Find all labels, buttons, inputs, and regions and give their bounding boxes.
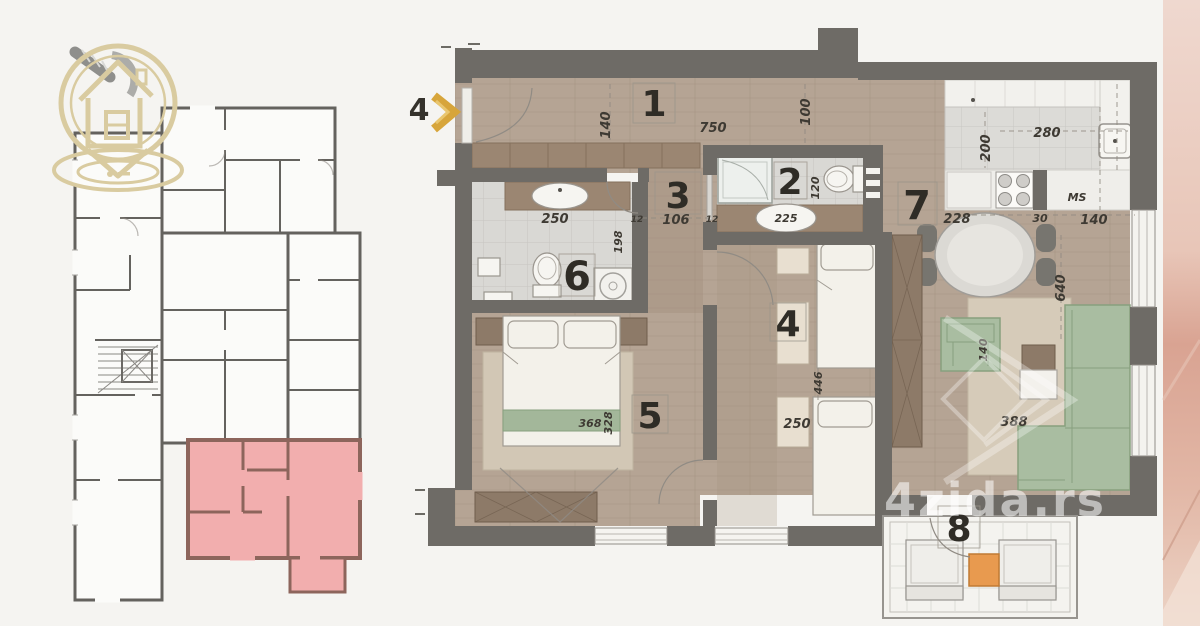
dim-dishwasher: MS xyxy=(1068,191,1087,204)
sliding-door xyxy=(707,170,712,220)
dim-kitchen-b: 30 xyxy=(1032,212,1048,225)
entrance-number: 4 xyxy=(409,93,430,128)
single-bed xyxy=(813,397,877,515)
main-floor-plan: 4 1 2 3 4 5 6 7 8 750 140 100 xyxy=(409,28,1157,618)
dim-bed4-height: 446 xyxy=(812,371,825,395)
floorplan-page: 4 1 2 3 4 5 6 7 8 750 140 100 xyxy=(0,0,1200,626)
room-label-4: 4 xyxy=(775,304,800,345)
stove xyxy=(996,172,1033,208)
terrace-chair xyxy=(999,540,1056,600)
dim-hall-width: 140 xyxy=(599,111,614,138)
bidet xyxy=(478,258,500,276)
room-label-6: 6 xyxy=(563,254,591,300)
room-label-3: 3 xyxy=(665,176,690,217)
dim-living-height: 640 xyxy=(1054,274,1069,301)
toilet xyxy=(824,166,864,192)
nightstand xyxy=(777,248,809,274)
dim-bath2-width: 120 xyxy=(809,176,822,199)
dim-bath2-sink: 225 xyxy=(775,212,798,225)
dim-kitchen-width: 280 xyxy=(1033,126,1060,141)
hallway-wardrobe xyxy=(472,143,700,168)
background-photo-strip xyxy=(1163,0,1200,626)
site-watermark: 4zida.rs xyxy=(884,473,1106,527)
dim-kitchen-a: 228 xyxy=(943,212,970,227)
washing-machine xyxy=(594,268,632,304)
sink xyxy=(532,183,588,209)
dim-hall3-wall-left: 12 xyxy=(631,215,644,225)
terrace-table xyxy=(969,554,999,586)
dim-hall-length: 750 xyxy=(699,121,726,136)
dim-hall3-wall-right: 12 xyxy=(706,215,719,225)
floorplan-canvas: 4 1 2 3 4 5 6 7 8 750 140 100 xyxy=(0,0,1200,626)
dim-hall3-width: 106 xyxy=(662,213,689,228)
bedroom-5-wardrobe xyxy=(475,492,597,522)
room-label-2: 2 xyxy=(777,162,802,203)
living-wardrobe xyxy=(892,235,922,447)
wall-shelf-slots xyxy=(866,168,880,198)
single-bed xyxy=(817,240,877,368)
dim-bed4-width: 250 xyxy=(783,417,810,432)
dim-bath6-width: 250 xyxy=(541,212,568,227)
dim-bed5-width: 368 xyxy=(579,417,602,430)
dim-duct: 100 xyxy=(799,98,814,125)
dim-kitchen-depth: 200 xyxy=(979,134,994,161)
toilet xyxy=(533,253,561,297)
room-label-7: 7 xyxy=(903,183,931,229)
side-table xyxy=(1022,345,1055,370)
dim-bed5-height: 328 xyxy=(602,411,615,434)
dim-kitchen-c: 140 xyxy=(1080,213,1107,228)
dim-bath6-depth: 198 xyxy=(612,230,625,253)
room-label-5: 5 xyxy=(637,396,662,437)
nightstand xyxy=(620,318,647,345)
room-label-1: 1 xyxy=(641,84,666,125)
shower xyxy=(718,157,772,203)
nightstand xyxy=(476,318,503,345)
